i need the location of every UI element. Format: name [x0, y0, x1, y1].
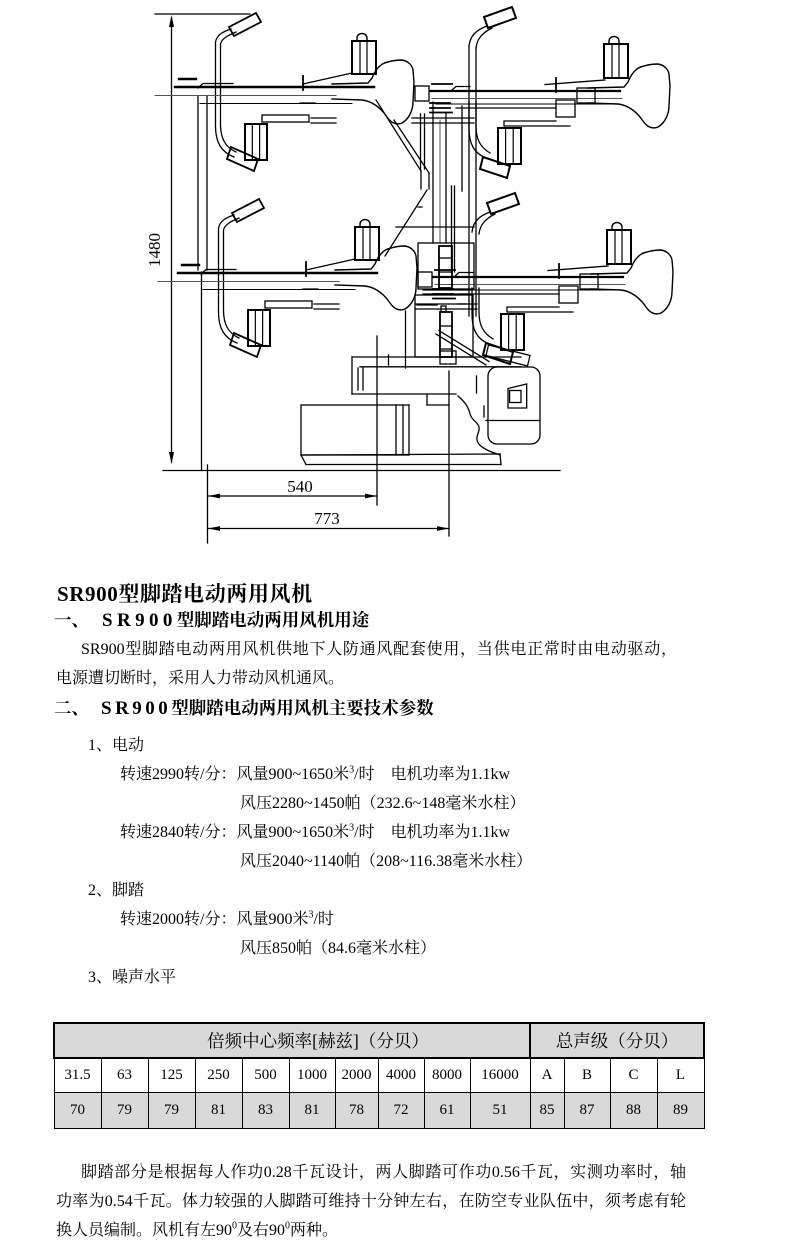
svg-text:773: 773 [314, 509, 340, 528]
svg-text:540: 540 [287, 477, 313, 496]
svg-text:1480: 1480 [145, 233, 164, 267]
